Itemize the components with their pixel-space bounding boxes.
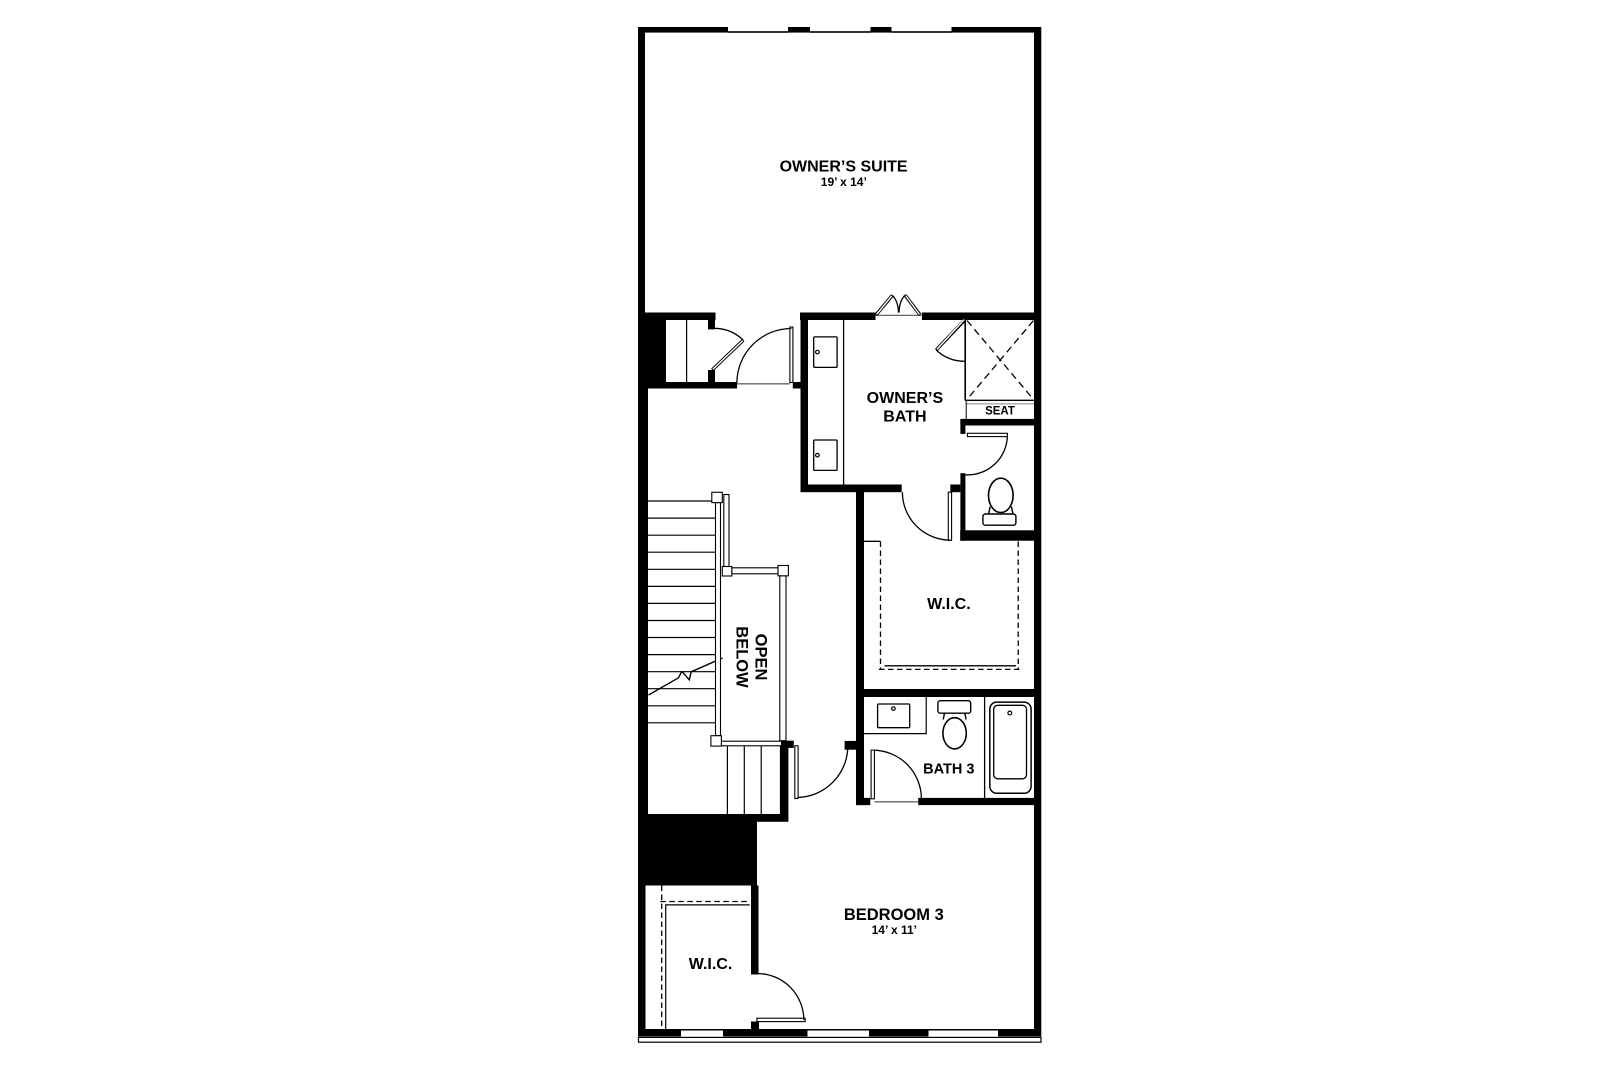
svg-text:19’ x 14’: 19’ x 14’ [821, 175, 867, 189]
svg-text:BATH: BATH [883, 409, 926, 426]
svg-text:OWNER’S: OWNER’S [867, 390, 944, 407]
svg-text:BEDROOM 3: BEDROOM 3 [844, 906, 944, 924]
svg-text:OPEN: OPEN [752, 634, 770, 681]
svg-text:SEAT: SEAT [985, 405, 1015, 417]
svg-text:14’ x 11’: 14’ x 11’ [872, 923, 917, 937]
svg-text:OWNER’S SUITE: OWNER’S SUITE [780, 158, 908, 175]
svg-text:BELOW: BELOW [733, 626, 751, 688]
svg-text:W.I.C.: W.I.C. [927, 596, 971, 613]
svg-text:W.I.C.: W.I.C. [689, 956, 733, 973]
svg-text:BATH 3: BATH 3 [923, 762, 974, 778]
